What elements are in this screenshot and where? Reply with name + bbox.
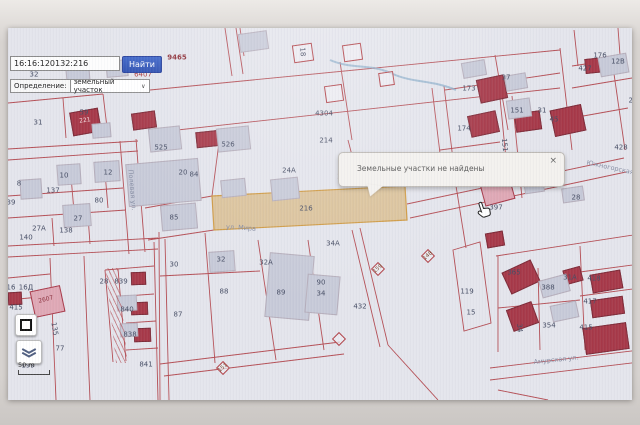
screenshot-photo: 946532640731592218101213780392727А140138…: [0, 0, 640, 425]
parcel-label: 34А: [326, 241, 340, 248]
tooltip-tail: [365, 184, 383, 198]
parcel-label: 31: [538, 108, 547, 115]
building-footprint: [220, 178, 247, 199]
parcel-label: 354: [542, 323, 555, 330]
diamond-label: [333, 333, 345, 345]
parcel-label: 80: [95, 198, 104, 205]
building-footprint: [270, 177, 300, 202]
diamond-label: 151: [217, 362, 229, 374]
parcel-label: 90: [317, 280, 326, 287]
building-footprint: [131, 272, 146, 286]
parcel-label: 84: [190, 172, 199, 179]
parcel-label: 27: [74, 216, 83, 223]
parcel-label: 15: [467, 310, 476, 317]
parcel-label: 34: [515, 323, 523, 332]
parcel-label: 525: [154, 145, 167, 152]
building-footprint: [19, 178, 42, 199]
parcel-label: 838: [123, 332, 136, 339]
filter-selected-value: земельный участок: [74, 78, 142, 94]
parcel-label: 24А: [282, 168, 296, 175]
search-input[interactable]: [10, 56, 120, 71]
parcel-label: 839: [114, 279, 127, 286]
building-footprint: [91, 122, 111, 139]
extent-icon: [20, 319, 32, 331]
parcel-label: 427: [578, 66, 591, 73]
extent-tool-button[interactable]: [15, 314, 37, 336]
parcel-label: 174: [457, 126, 470, 133]
chevron-down-icon: ∨: [141, 83, 145, 90]
parcel-label: 137: [46, 188, 59, 195]
parcel-label: 432: [353, 304, 366, 311]
building-footprint: [485, 231, 505, 249]
parcel-label: 28: [100, 279, 109, 286]
parcel-label: 526: [221, 142, 234, 149]
parcel-label: 840: [120, 307, 133, 314]
parcel-label: 365: [507, 270, 520, 277]
parcel-label: 77: [56, 346, 65, 353]
parcel-label: 16Д: [19, 285, 33, 292]
parcel-label: 135: [49, 322, 58, 336]
parcel-label: 27А: [32, 226, 46, 233]
parcel-label: 216: [299, 206, 312, 213]
building-footprint: [324, 84, 344, 103]
parcel-label: 37: [502, 75, 511, 82]
parcel-label: 4304: [315, 111, 333, 118]
parcel-label: 418: [587, 276, 600, 283]
building-footprint: [342, 43, 363, 62]
diamond-label: 148: [422, 250, 434, 262]
building-footprint: [216, 125, 251, 152]
parcel-label: 87: [174, 312, 183, 319]
parcel-label: 32: [217, 257, 226, 264]
building-footprint: [160, 202, 198, 231]
parcel-label: 89: [277, 290, 286, 297]
parcel-label: 151: [500, 138, 508, 152]
parcel-label: 20: [179, 170, 188, 177]
tooltip-text: Земельные участки не найдены: [357, 164, 484, 173]
search-panel: Найти: [10, 56, 162, 73]
parcel-label: 119: [460, 289, 473, 296]
parcel-label: 45: [550, 117, 559, 124]
parcel-label: 32А: [259, 260, 273, 267]
parcel-label: 415: [9, 305, 22, 312]
parcel-label: 31А: [563, 275, 577, 282]
parcel-label: 12: [104, 170, 113, 177]
parcel-label: 39: [8, 200, 15, 207]
search-button[interactable]: Найти: [122, 56, 162, 73]
parcel-label: 10: [60, 173, 69, 180]
diamond-label: 159: [372, 263, 384, 275]
scale-label: 50 m: [18, 361, 35, 369]
parcel-label: 138: [59, 228, 72, 235]
parcel-label: 176: [593, 53, 606, 60]
layers-icon: [20, 344, 38, 360]
cadastral-map[interactable]: 946532640731592218101213780392727А140138…: [8, 28, 632, 400]
parcel-label: 12В: [611, 59, 625, 66]
parcel-label: 85: [170, 215, 179, 222]
parcel-label: 388: [541, 285, 554, 292]
scale-bar: 50 m: [18, 361, 50, 375]
parcel-label: 30: [170, 262, 179, 269]
parcel-label: 140: [19, 235, 32, 242]
not-found-tooltip: Земельные участки не найдены ×: [338, 152, 565, 187]
building-footprint: [238, 30, 269, 53]
street-label: ул. Мира: [226, 224, 256, 233]
parcel-label: 417: [583, 299, 596, 306]
filter-select[interactable]: земельный участок ∨: [71, 79, 150, 93]
parcel-label: 8: [17, 181, 21, 188]
parcel-label: 31: [34, 120, 43, 127]
filter-panel: Определение: земельный участок ∨: [10, 79, 150, 93]
parcel-label: 214: [319, 138, 332, 145]
close-icon[interactable]: ×: [549, 156, 557, 166]
parcel-label: 34: [317, 291, 326, 298]
parcel-label: 173: [462, 86, 475, 93]
filter-label: Определение:: [10, 79, 71, 93]
parcel-label: 27: [629, 98, 632, 105]
parcel-label: 428: [614, 145, 627, 152]
scale-bar-line: [18, 370, 50, 375]
parcel-label: 16: [8, 285, 15, 292]
building-footprint: [378, 71, 395, 87]
parcel-label: 415: [579, 325, 592, 332]
parcel-label: 151: [510, 108, 523, 115]
parcel-label: 88: [220, 289, 229, 296]
parcel-label: 9465: [167, 55, 186, 62]
parcel-label: 28: [572, 195, 581, 202]
parcel-label: 841: [139, 362, 152, 369]
parcel-label: 59: [80, 110, 89, 117]
parcel-label: 18: [298, 47, 306, 56]
